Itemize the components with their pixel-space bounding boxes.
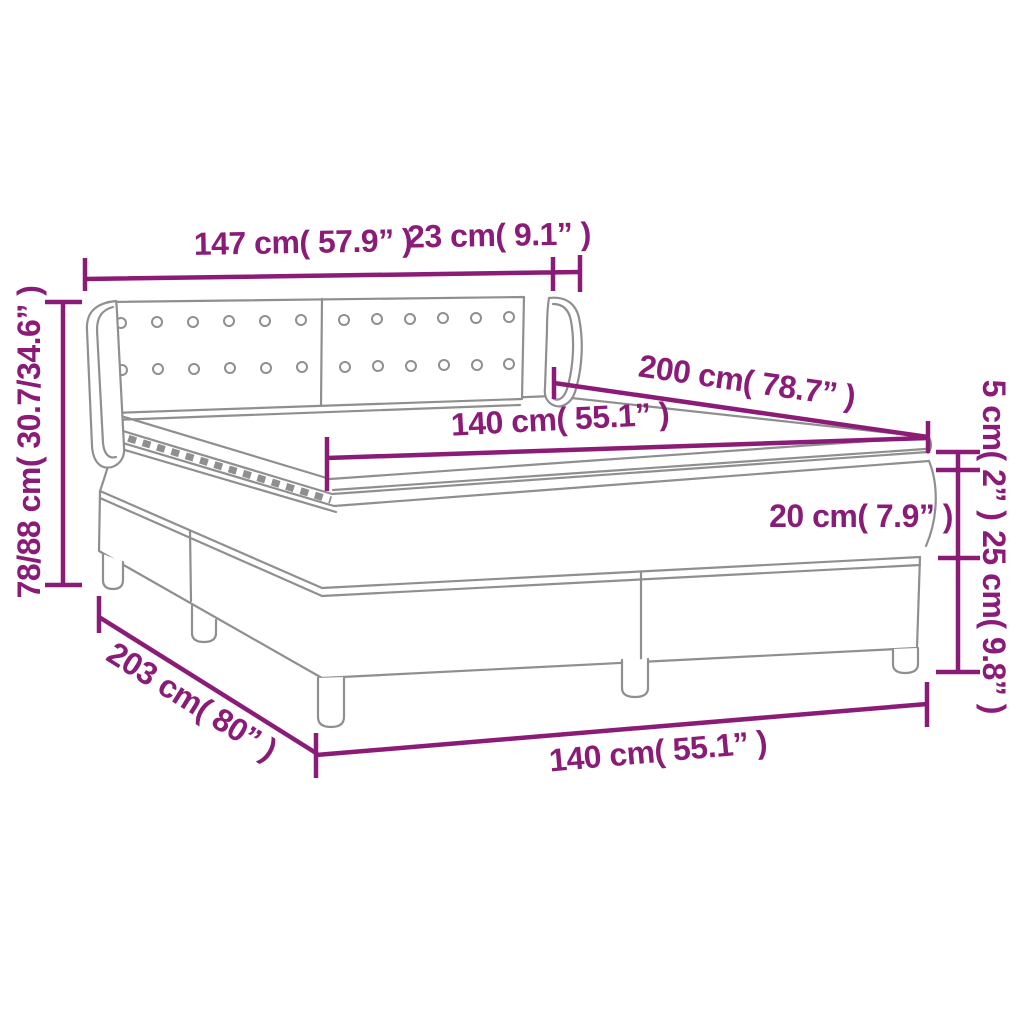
dimension-line: [45, 302, 82, 585]
bed-leg: [893, 648, 918, 673]
base-seam-side: [190, 531, 191, 601]
dim-mattress-width-bottom: 140 cm( 55.1” ): [316, 682, 927, 778]
bed-leg: [622, 659, 648, 697]
headboard-left-wing: [87, 301, 124, 468]
diagram-canvas: 147 cm( 57.9” ) 23 cm( 9.1” ) 78/88 cm( …: [0, 0, 1024, 1024]
bed-leg: [318, 677, 344, 727]
dim-total-height: 78/88 cm( 30.7/34.6” ): [11, 286, 82, 599]
dimension-line: [85, 257, 580, 291]
dimension-label: 78/88 cm( 30.7/34.6” ): [11, 286, 47, 599]
headboard-panel: [108, 297, 524, 413]
bed-dimension-diagram: 147 cm( 57.9” ) 23 cm( 9.1” ) 78/88 cm( …: [0, 0, 1024, 1024]
headboard-right-wing: [545, 298, 582, 407]
dimension-label: 147 cm( 57.9” ): [193, 222, 412, 262]
dimension-label: 203 cm( 80” ): [101, 635, 284, 768]
dimension-label: 23 cm( 9.1” ): [407, 215, 591, 254]
dimension-line: [936, 452, 980, 672]
headboard-panel-divider: [321, 299, 322, 406]
dimension-label: 20 cm( 7.9” ): [769, 498, 953, 534]
dimension-label: 200 cm( 78.7” ): [636, 348, 857, 415]
dimension-label: 25 cm( 9.8” ): [976, 530, 1012, 714]
dimension-label: 5 cm( 2” ): [976, 380, 1012, 521]
dim-wing-depth: 23 cm( 9.1” ): [407, 215, 591, 292]
